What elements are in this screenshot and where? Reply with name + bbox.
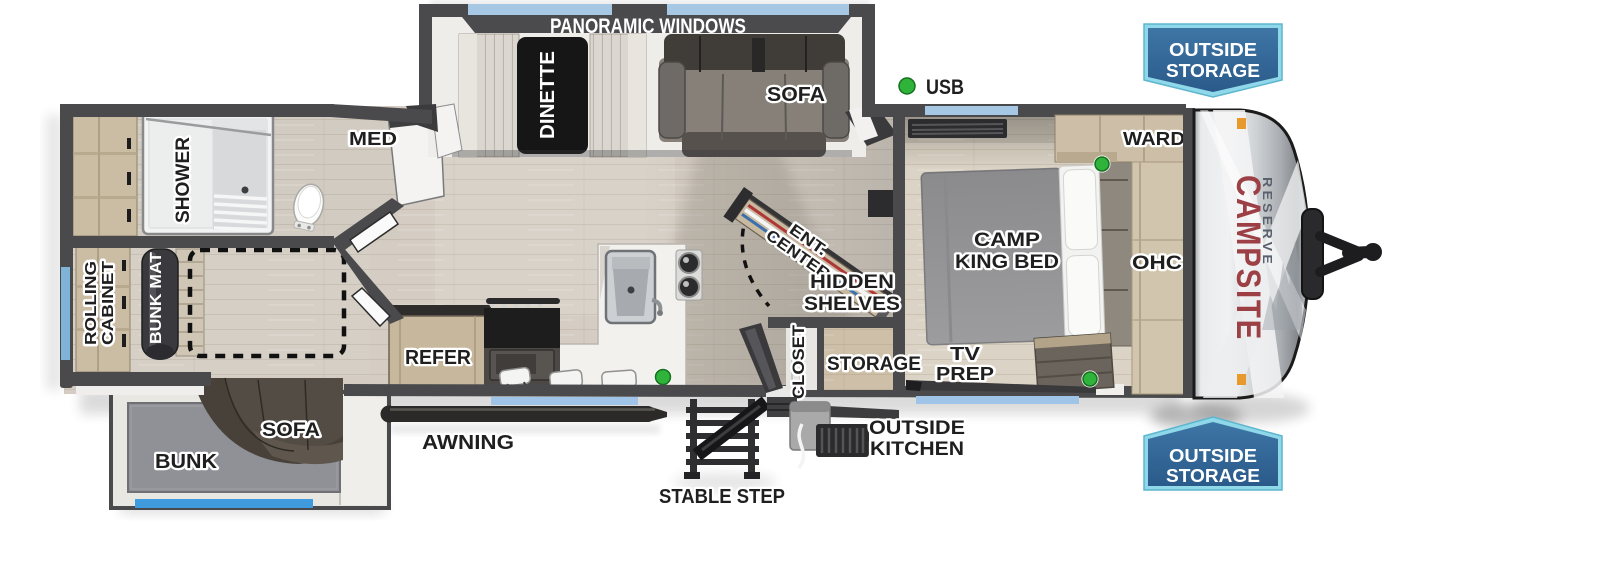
svg-text:DINETTE: DINETTE <box>537 51 559 139</box>
svg-text:CABINET: CABINET <box>100 261 117 345</box>
svg-text:HIDDEN: HIDDEN <box>810 272 894 293</box>
svg-text:KING BED: KING BED <box>955 252 1059 273</box>
svg-text:RESERVE: RESERVE <box>1260 177 1275 267</box>
svg-text:SHOWER: SHOWER <box>173 137 194 223</box>
svg-text:CLOSET: CLOSET <box>789 324 808 399</box>
svg-text:OUTSIDE: OUTSIDE <box>1169 40 1257 60</box>
svg-text:STABLE STEP: STABLE STEP <box>659 486 785 508</box>
svg-text:BUNK: BUNK <box>155 451 218 473</box>
svg-text:STORAGE: STORAGE <box>1166 466 1260 486</box>
svg-text:PREP: PREP <box>936 364 994 384</box>
svg-text:ROLLING: ROLLING <box>83 261 100 345</box>
svg-text:AWNING: AWNING <box>422 432 514 454</box>
svg-text:SOFA: SOFA <box>767 84 825 106</box>
svg-text:KITCHEN: KITCHEN <box>870 439 964 460</box>
svg-text:OHC: OHC <box>1132 253 1182 274</box>
svg-text:SHELVES: SHELVES <box>804 294 900 315</box>
svg-text:USB: USB <box>926 76 964 99</box>
svg-text:STORAGE: STORAGE <box>827 354 921 375</box>
svg-text:CAMP: CAMP <box>974 230 1040 251</box>
svg-text:BUNK MAT: BUNK MAT <box>148 251 165 344</box>
svg-text:WARD: WARD <box>1123 129 1185 149</box>
svg-text:REFER: REFER <box>405 347 472 369</box>
svg-text:MED: MED <box>349 129 397 149</box>
svg-text:OUTSIDE: OUTSIDE <box>869 418 965 439</box>
svg-text:STORAGE: STORAGE <box>1166 61 1260 81</box>
svg-text:TV: TV <box>950 344 980 364</box>
svg-text:SOFA: SOFA <box>262 420 320 441</box>
svg-text:OUTSIDE: OUTSIDE <box>1169 446 1257 466</box>
